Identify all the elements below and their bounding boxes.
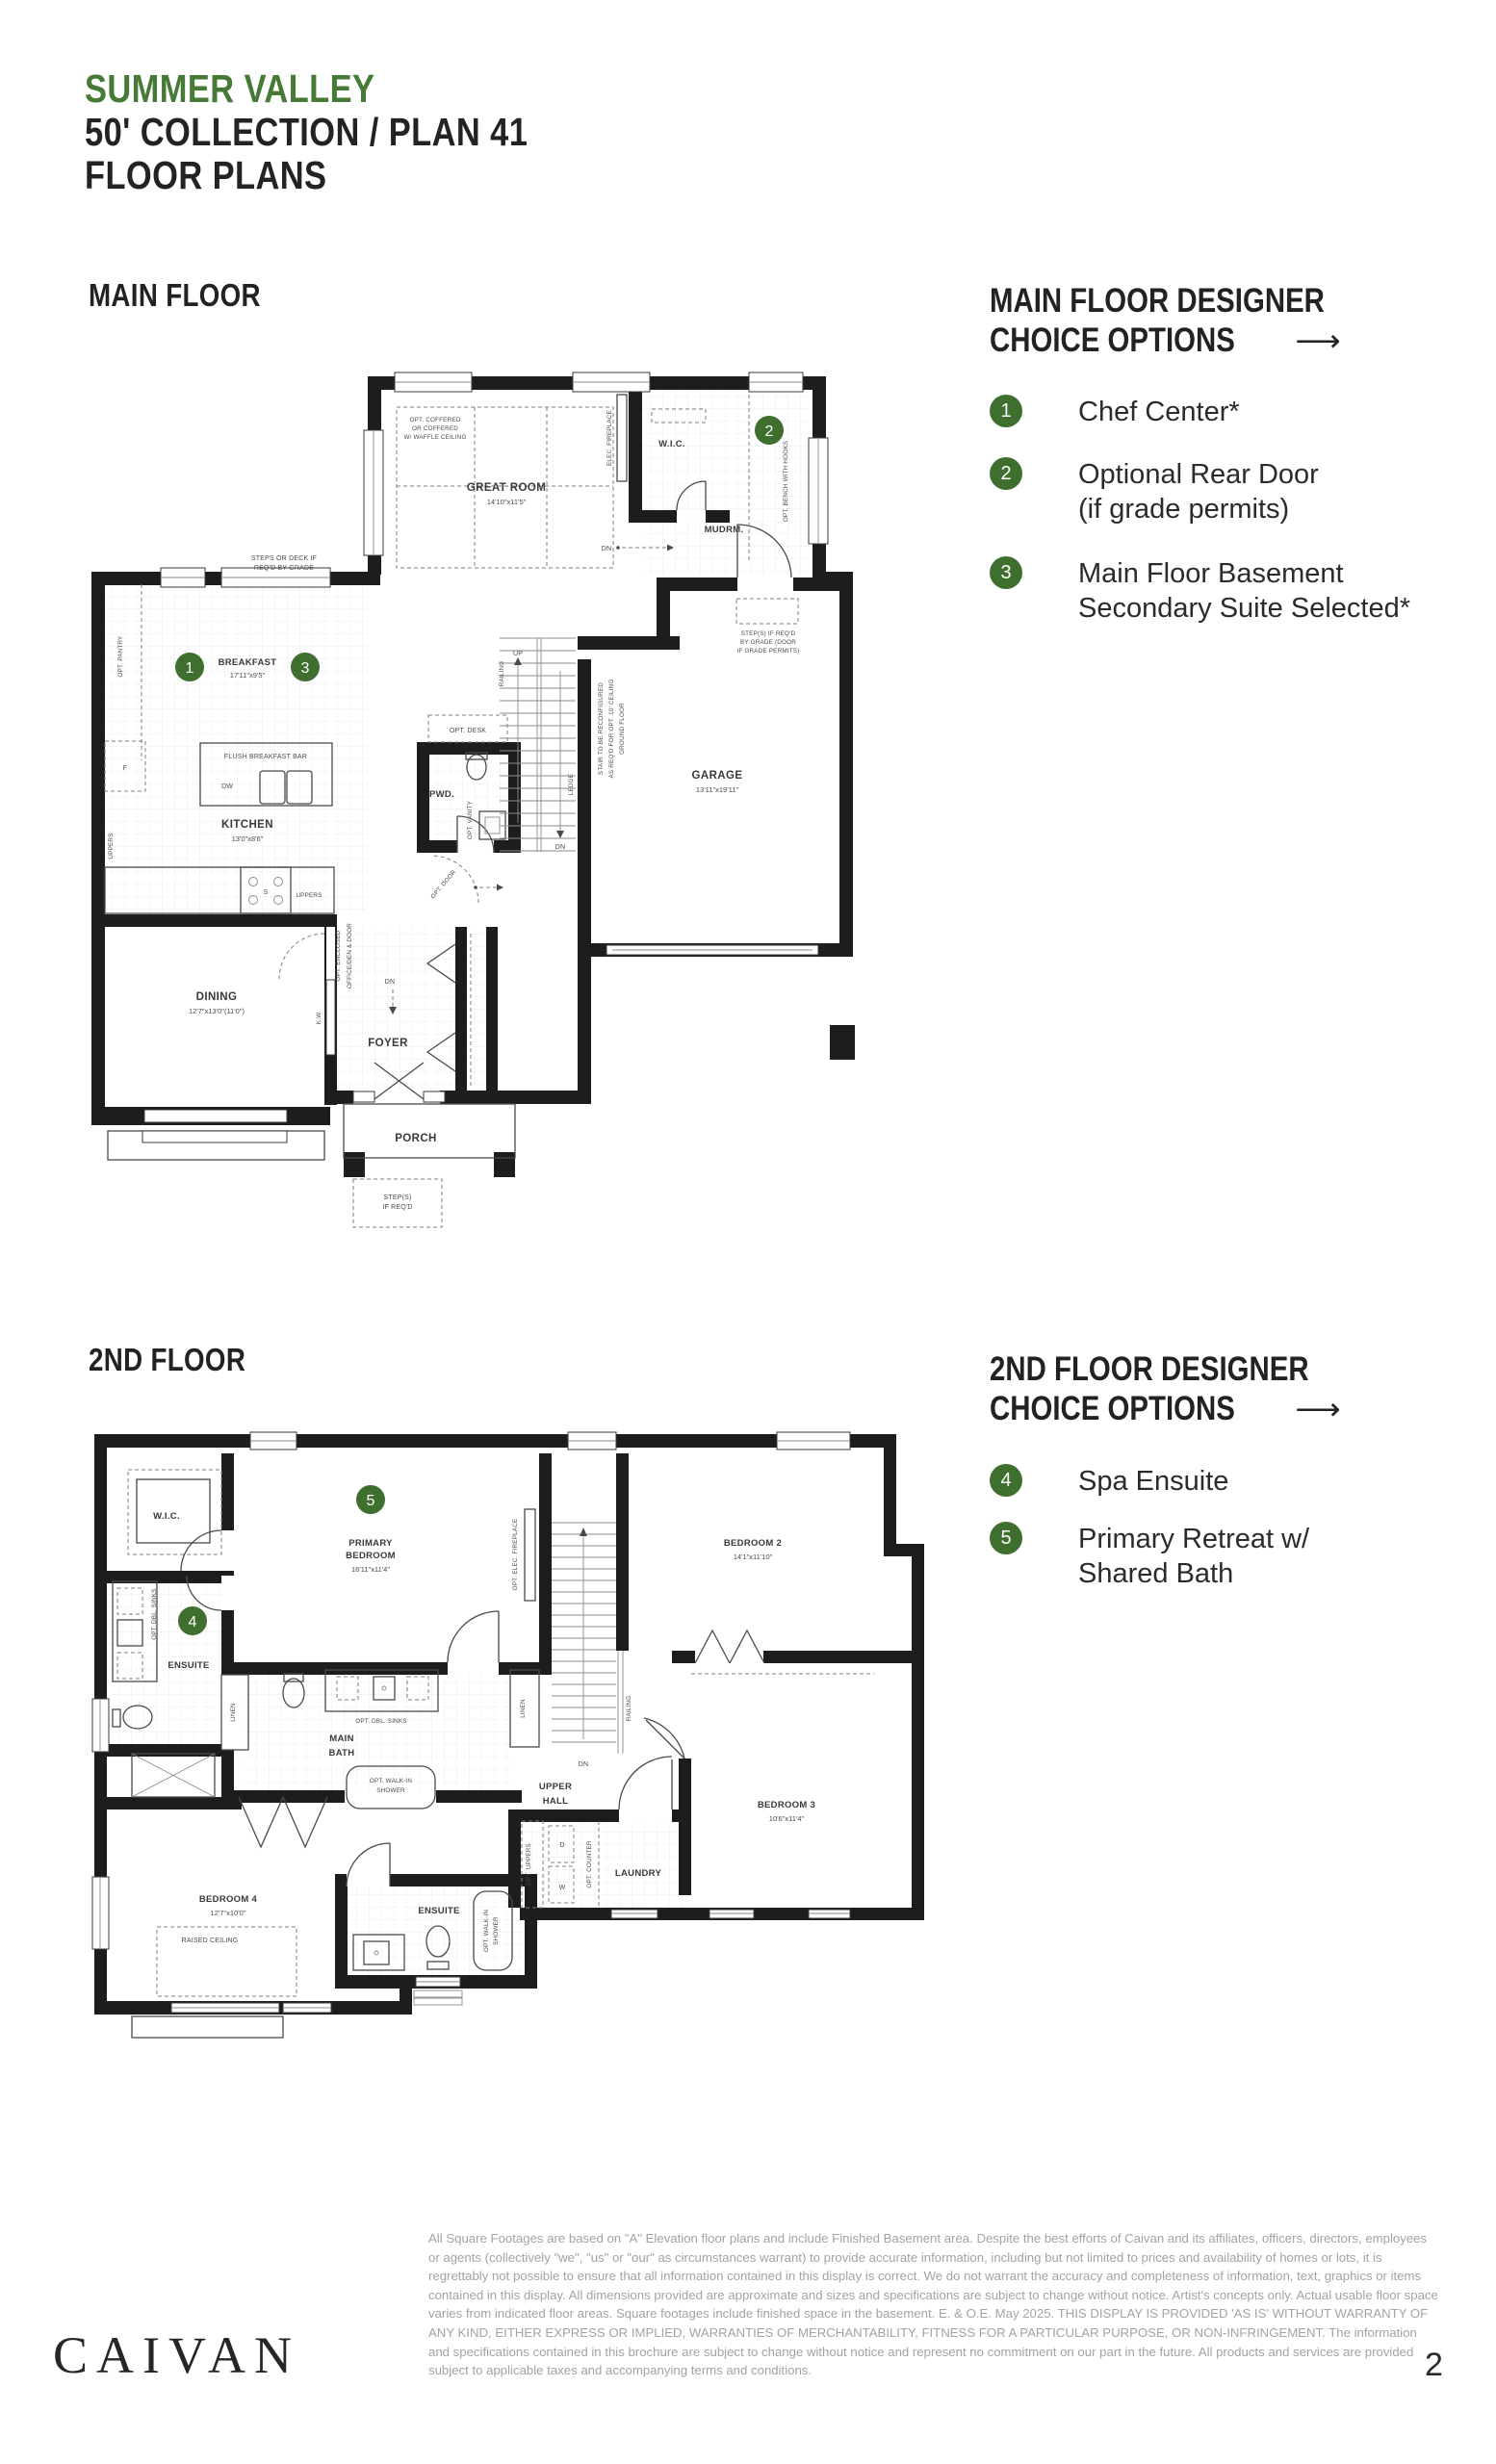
label-opt-uppers: OPT. UPPERS	[526, 1843, 532, 1886]
label-dn-stairs: DN	[555, 844, 566, 851]
label-opt-vanity: OPT. VANITY	[467, 800, 474, 839]
label-dining: DINING	[196, 991, 238, 1003]
label-ledge: LEDGE	[568, 774, 575, 795]
label-linen-left: LINEN	[230, 1703, 237, 1722]
option-badge-2: 2	[990, 457, 1022, 490]
page-header: SUMMER VALLEY 50' COLLECTION / PLAN 41 F…	[85, 67, 612, 197]
label-breakfast: BREAKFAST	[219, 657, 277, 668]
main-option-3: 3 Main Floor Basement Secondary Suite Se…	[990, 556, 1410, 626]
option-badge-3: 3	[990, 556, 1022, 589]
label-sink: S	[264, 889, 269, 896]
option-badge-4: 4	[990, 1464, 1022, 1497]
label-fireplace: OPT. ELEC. FIREPLACE	[512, 1519, 519, 1591]
label-bench: OPT. BENCH WITH HOOKS	[783, 441, 789, 522]
legal-disclaimer: All Square Footages are based on "A" Ele…	[428, 2229, 1441, 2380]
garage-step-note: STEP(S) IF REQ'D	[741, 630, 796, 637]
dim-dining: 12'7"x13'0"(11'0")	[189, 1007, 245, 1015]
main-option-1: 1 Chef Center*	[990, 395, 1240, 429]
label-dbl-sinks-bath: OPT. DBL. SINKS	[355, 1718, 406, 1725]
label-opt-pantry: OPT. PANTRY	[117, 635, 124, 678]
option-text-2: Optional Rear Door (if grade permits)	[1078, 457, 1319, 526]
option-badge-5: 5	[990, 1522, 1022, 1554]
dim-garage: 13'11"x19'11"	[696, 785, 739, 794]
label-opt-counter: OPT. COUNTER	[586, 1840, 593, 1888]
option-badge-1: 1	[990, 395, 1022, 427]
label-bedroom2: BEDROOM 2	[724, 1538, 782, 1549]
label-dryer: D	[559, 1842, 564, 1849]
label-bedroom4: BEDROOM 4	[199, 1894, 258, 1905]
label-opt-door: OPT. DOOR	[429, 869, 457, 901]
svg-text:W/ WAFFLE CEILING: W/ WAFFLE CEILING	[403, 434, 466, 441]
label-uppers: UPPERS	[296, 892, 322, 899]
second-floor-plan: W.I.C. 5 PRIMARY BEDROOM 16'11"x11'4" OP…	[56, 1431, 922, 2216]
label-upper-hall: UPPER	[539, 1782, 572, 1792]
dim-kitchen: 13'0"x8'6"	[232, 834, 264, 843]
label-wic: W.I.C.	[658, 439, 685, 449]
second-options-heading: 2ND FLOOR DESIGNER CHOICE OPTIONS⟶	[990, 1349, 1370, 1428]
dim-bedroom3: 10'6"x11'4"	[769, 1814, 805, 1823]
svg-text:HALL: HALL	[543, 1796, 569, 1807]
label-great-room: GREAT ROOM	[467, 482, 546, 494]
badge-3: 3	[301, 660, 310, 677]
label-flush-bar: FLUSH BREAKFAST BAR	[224, 754, 307, 760]
label-porch: PORCH	[395, 1133, 437, 1144]
community-name: SUMMER VALLEY	[85, 67, 374, 111]
label-linen-right: LINEN	[520, 1699, 527, 1718]
label-railing: RAILING	[626, 1696, 632, 1722]
svg-text:IF REQ'D: IF REQ'D	[382, 1204, 412, 1211]
label-opt-desk: OPT. DESK	[450, 728, 486, 734]
label-ensuite-master: ENSUITE	[168, 1660, 209, 1671]
dim-primary: 16'11"x11'4"	[351, 1565, 390, 1574]
dim-bedroom4: 12'7"x10'0"	[211, 1909, 246, 1917]
svg-text:BY GRADE (DOOR: BY GRADE (DOOR	[740, 639, 796, 646]
label-garage: GARAGE	[692, 770, 743, 782]
label-walkin-bath: OPT. WALK-IN	[370, 1778, 412, 1784]
dim-great-room: 14'10"x11'5"	[487, 498, 527, 506]
label-primary: PRIMARY	[348, 1538, 393, 1549]
dim-breakfast: 17'11"x9'5"	[230, 671, 266, 680]
label-pwd: PWD.	[429, 789, 454, 800]
page-title: FLOOR PLANS	[85, 154, 326, 197]
svg-text:AS REQ'D FOR OPT. 10' CEILING: AS REQ'D FOR OPT. 10' CEILING	[608, 679, 615, 778]
badge-1: 1	[186, 660, 194, 677]
svg-text:GROUND FLOOR: GROUND FLOOR	[619, 703, 626, 755]
stair-note: STAIR TO BE RECONFIGURED	[598, 682, 605, 775]
svg-text:OFFICE/DEN & DOOR: OFFICE/DEN & DOOR	[347, 923, 353, 988]
svg-text:SHOWER: SHOWER	[376, 1787, 405, 1794]
garage-door	[606, 945, 818, 955]
collection-plan: 50' COLLECTION / PLAN 41	[85, 111, 528, 154]
option-text-5: Primary Retreat w/ Shared Bath	[1078, 1522, 1309, 1591]
second-floor-label: 2ND FLOOR	[89, 1342, 275, 1378]
caivan-logo: CAIVAN	[53, 2325, 300, 2385]
right-arrow-icon: ⟶	[1295, 322, 1340, 358]
coffered-note: OPT. COFFERED	[410, 417, 461, 423]
svg-text:OR COFFERED: OR COFFERED	[412, 425, 458, 432]
label-dn-foyer: DN	[385, 979, 396, 986]
svg-text:BEDROOM: BEDROOM	[346, 1551, 396, 1561]
main-option-2: 2 Optional Rear Door (if grade permits)	[990, 457, 1319, 526]
label-walkin-bed4: OPT. WALK-IN	[483, 1910, 490, 1952]
label-ensuite-bed4: ENSUITE	[418, 1906, 459, 1916]
second-option-5: 5 Primary Retreat w/ Shared Bath	[990, 1522, 1309, 1591]
svg-text:REQ'D BY GRADE: REQ'D BY GRADE	[254, 565, 314, 572]
dim-bedroom2: 14'1"x11'10"	[734, 1553, 773, 1561]
option-text-3: Main Floor Basement Secondary Suite Sele…	[1078, 556, 1410, 626]
steps-deck-note: STEPS OR DECK IF	[251, 555, 317, 562]
label-elec-fireplace: ELEC. FIREPLACE	[606, 410, 613, 466]
svg-text:IF GRADE PERMITS): IF GRADE PERMITS)	[737, 648, 800, 654]
label-raised-ceiling: RAISED CEILING	[182, 1938, 239, 1944]
badge-5: 5	[367, 1493, 375, 1509]
label-wic: W.I.C.	[153, 1511, 180, 1522]
brochure-page: { "theme": {"green": "#3E6F2E", "ink": "…	[0, 0, 1496, 2464]
label-laundry: LAUNDRY	[615, 1868, 662, 1879]
label-kw: K.W.	[316, 1011, 322, 1024]
badge-2: 2	[765, 423, 774, 440]
label-fridge: F	[123, 765, 127, 772]
label-dw: DW	[221, 783, 233, 790]
label-dn-mudroom: DN	[602, 546, 612, 552]
label-up: UP	[513, 651, 523, 657]
office-note: OPT. ENCLOSED	[335, 930, 342, 981]
right-arrow-icon: ⟶	[1295, 1391, 1340, 1426]
main-floor-plan: STEPS OR DECK IF REQ'D BY GRADE OPT. COF…	[87, 371, 876, 1246]
label-dbl-sinks-ensuite: OPT. DBL. SINKS	[151, 1588, 158, 1639]
main-floor-label: MAIN FLOOR	[89, 277, 294, 314]
page-number: 2	[1425, 2347, 1443, 2384]
label-dn: DN	[579, 1761, 589, 1768]
option-text-1: Chef Center*	[1078, 395, 1240, 429]
svg-text:UPPERS: UPPERS	[108, 833, 115, 859]
label-bedroom3: BEDROOM 3	[758, 1800, 815, 1810]
porch-step-note: STEP(S)	[383, 1194, 411, 1201]
label-main-bath: MAIN	[329, 1733, 353, 1744]
label-kitchen: KITCHEN	[221, 819, 273, 831]
label-washer: W	[559, 1885, 566, 1891]
svg-text:BATH: BATH	[329, 1748, 355, 1758]
label-railing: RAILING	[499, 661, 505, 687]
label-foyer: FOYER	[368, 1038, 408, 1049]
badge-4: 4	[189, 1614, 197, 1630]
option-text-4: Spa Ensuite	[1078, 1464, 1228, 1499]
svg-text:SHOWER: SHOWER	[493, 1916, 500, 1945]
second-option-4: 4 Spa Ensuite	[990, 1464, 1228, 1499]
label-mudrm: MUDRM.	[705, 525, 744, 535]
main-options-heading: MAIN FLOOR DESIGNER CHOICE OPTIONS⟶	[990, 281, 1388, 360]
